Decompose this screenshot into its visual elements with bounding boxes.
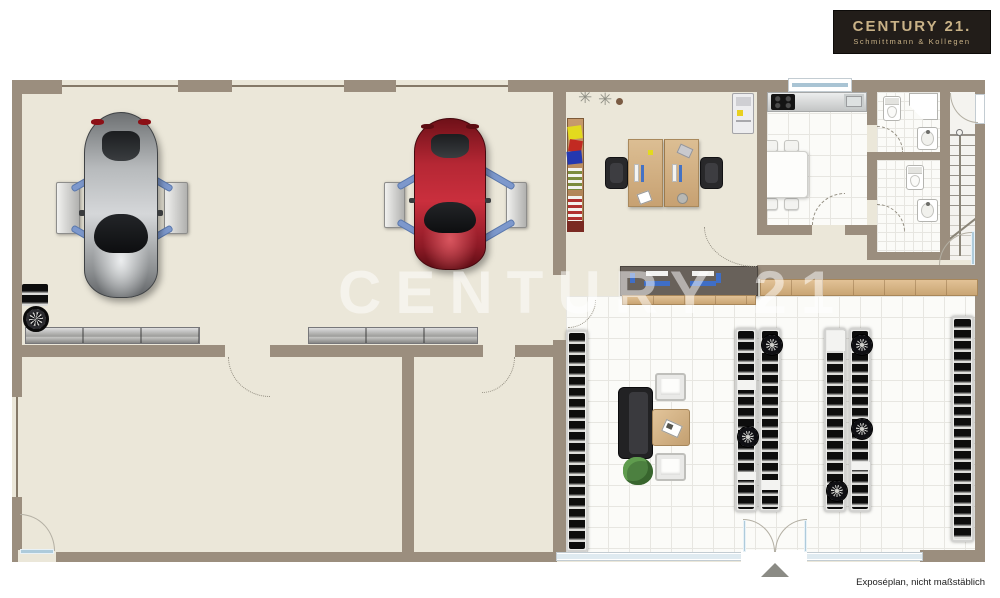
reception-phone	[716, 273, 721, 283]
plant	[623, 457, 653, 485]
taillight	[91, 119, 105, 125]
window-top-2	[232, 85, 344, 87]
wall-workshop-south-2	[270, 345, 483, 357]
printer-light	[737, 110, 743, 116]
wall-top-pillar-2	[178, 80, 232, 92]
desk-item-sticky	[648, 150, 653, 155]
rack-empty-slot	[738, 472, 756, 480]
washbasin	[917, 127, 938, 150]
alloy-wheel	[851, 418, 873, 440]
armchair	[655, 373, 686, 401]
coffee-table	[652, 409, 690, 446]
staircase-treads	[948, 136, 975, 206]
side-mirror	[409, 198, 415, 203]
shelf-item-blue	[566, 150, 582, 164]
wheel-corner	[23, 306, 49, 332]
kitchen-window-glass	[792, 83, 848, 87]
wall-bath-divider	[867, 152, 950, 160]
scale-disclaimer: Exposéplan, nicht maßstäblich	[856, 577, 985, 588]
alloy-wheel	[826, 480, 848, 502]
rack-empty-slot	[827, 331, 845, 351]
desk-item-lamp	[677, 193, 688, 204]
desk-monitor	[634, 164, 639, 182]
tire-stack	[954, 319, 971, 539]
wall-top-pillar-3	[344, 80, 396, 92]
decor-star-icon: ✳	[598, 92, 612, 109]
rear-window	[431, 134, 469, 158]
wall-bath-south	[867, 252, 950, 260]
workbench-right	[308, 327, 478, 344]
toilet	[906, 165, 924, 190]
desk-monitor	[672, 164, 677, 182]
alloy-wheel	[851, 334, 873, 356]
desk-keyboard	[679, 165, 682, 182]
shelf-item-base	[567, 221, 584, 232]
office-chair-left	[605, 157, 628, 189]
workbench-left	[25, 327, 200, 344]
shelf-item-striped	[568, 168, 582, 190]
cooktop	[771, 94, 795, 110]
tire-rack	[735, 328, 757, 512]
floorplan-page: ✳ ✳	[0, 0, 1000, 598]
wall-top-right	[553, 80, 985, 92]
armchair	[655, 453, 686, 481]
side-mirror	[157, 210, 163, 217]
decor-star-icon: ✳	[578, 90, 592, 107]
wall-showroom-left	[553, 340, 566, 552]
reception-keyboard	[690, 281, 716, 286]
windshield	[94, 214, 147, 253]
wall-bath-left-1	[867, 92, 877, 125]
shelf-item-boxes	[568, 196, 582, 222]
staircase-rail-knob	[956, 129, 963, 136]
tire-rack	[566, 330, 588, 552]
tire-rack	[824, 328, 846, 512]
rear-window	[102, 131, 141, 160]
washbasin	[917, 199, 938, 222]
rack-empty-slot	[762, 480, 780, 490]
rack-empty-slot	[738, 380, 756, 390]
wall-bottom-left	[12, 552, 557, 562]
logo-subtitle: Schmittmann & Kollegen	[853, 37, 970, 46]
sideboard-counter	[760, 279, 978, 296]
window-top-3	[396, 85, 508, 87]
wall-kitchen-south-2	[845, 225, 877, 235]
wall-office-kitchen	[757, 92, 767, 235]
desk-keyboard	[641, 165, 644, 182]
entrance-marker-icon	[761, 563, 789, 577]
car-red	[414, 118, 486, 270]
century21-logo: CENTURY 21. Schmittmann & Kollegen	[833, 10, 991, 54]
taillight	[466, 124, 479, 129]
tire-stack	[569, 333, 585, 549]
wall-workshop-south-3	[515, 345, 565, 357]
tire-stack	[738, 331, 754, 509]
tire-rack	[759, 328, 781, 512]
sofa	[618, 387, 653, 459]
printer-tray	[736, 97, 751, 106]
tire-rack	[849, 328, 871, 512]
wall-stairs-left	[940, 92, 950, 260]
dining-table	[760, 151, 808, 198]
alloy-wheel	[737, 426, 759, 448]
wall-room-divider	[402, 357, 414, 552]
wall-right	[975, 80, 985, 562]
wall-showroom-north	[757, 265, 985, 279]
rack-empty-slot	[852, 462, 870, 470]
entrance-door-leaf-left	[743, 520, 746, 552]
shopfront-glazing-left	[557, 553, 743, 560]
magazine	[661, 419, 683, 438]
reception-counter	[620, 266, 758, 296]
tire-stack-corner	[22, 284, 48, 306]
alloy-wheel	[761, 334, 783, 356]
shelf-item-yellow	[567, 125, 583, 140]
reception-counter-front	[622, 295, 756, 305]
reception-keyboard	[644, 281, 670, 286]
decor-dot	[616, 98, 623, 105]
logo-title: CENTURY 21.	[853, 18, 972, 35]
wall-kitchen-south-1	[757, 225, 812, 235]
taillight	[138, 119, 152, 125]
side-mirror	[79, 210, 85, 217]
kitchen-sink	[844, 94, 864, 109]
reception-monitor	[646, 271, 668, 276]
dining-chair	[784, 198, 799, 210]
side-mirror	[485, 198, 491, 203]
windshield	[424, 202, 476, 234]
printer	[732, 93, 754, 134]
tire-rack-wall	[951, 316, 974, 542]
office-chair-right	[700, 157, 723, 189]
window-top-1	[62, 85, 178, 87]
printer-slot	[736, 120, 751, 122]
toilet	[883, 96, 901, 121]
reception-monitor	[692, 271, 714, 276]
shopfront-glazing-right	[807, 553, 922, 560]
taillight	[421, 124, 434, 129]
wall-workshop-south-1	[22, 345, 225, 357]
reception-phone	[630, 273, 635, 283]
wall-workshop-office	[553, 92, 566, 275]
window-left-glass	[16, 397, 18, 497]
wall-bottom-right-corner	[920, 550, 985, 562]
car-silver	[84, 112, 158, 298]
entrance-door-leaf-right	[804, 520, 807, 552]
